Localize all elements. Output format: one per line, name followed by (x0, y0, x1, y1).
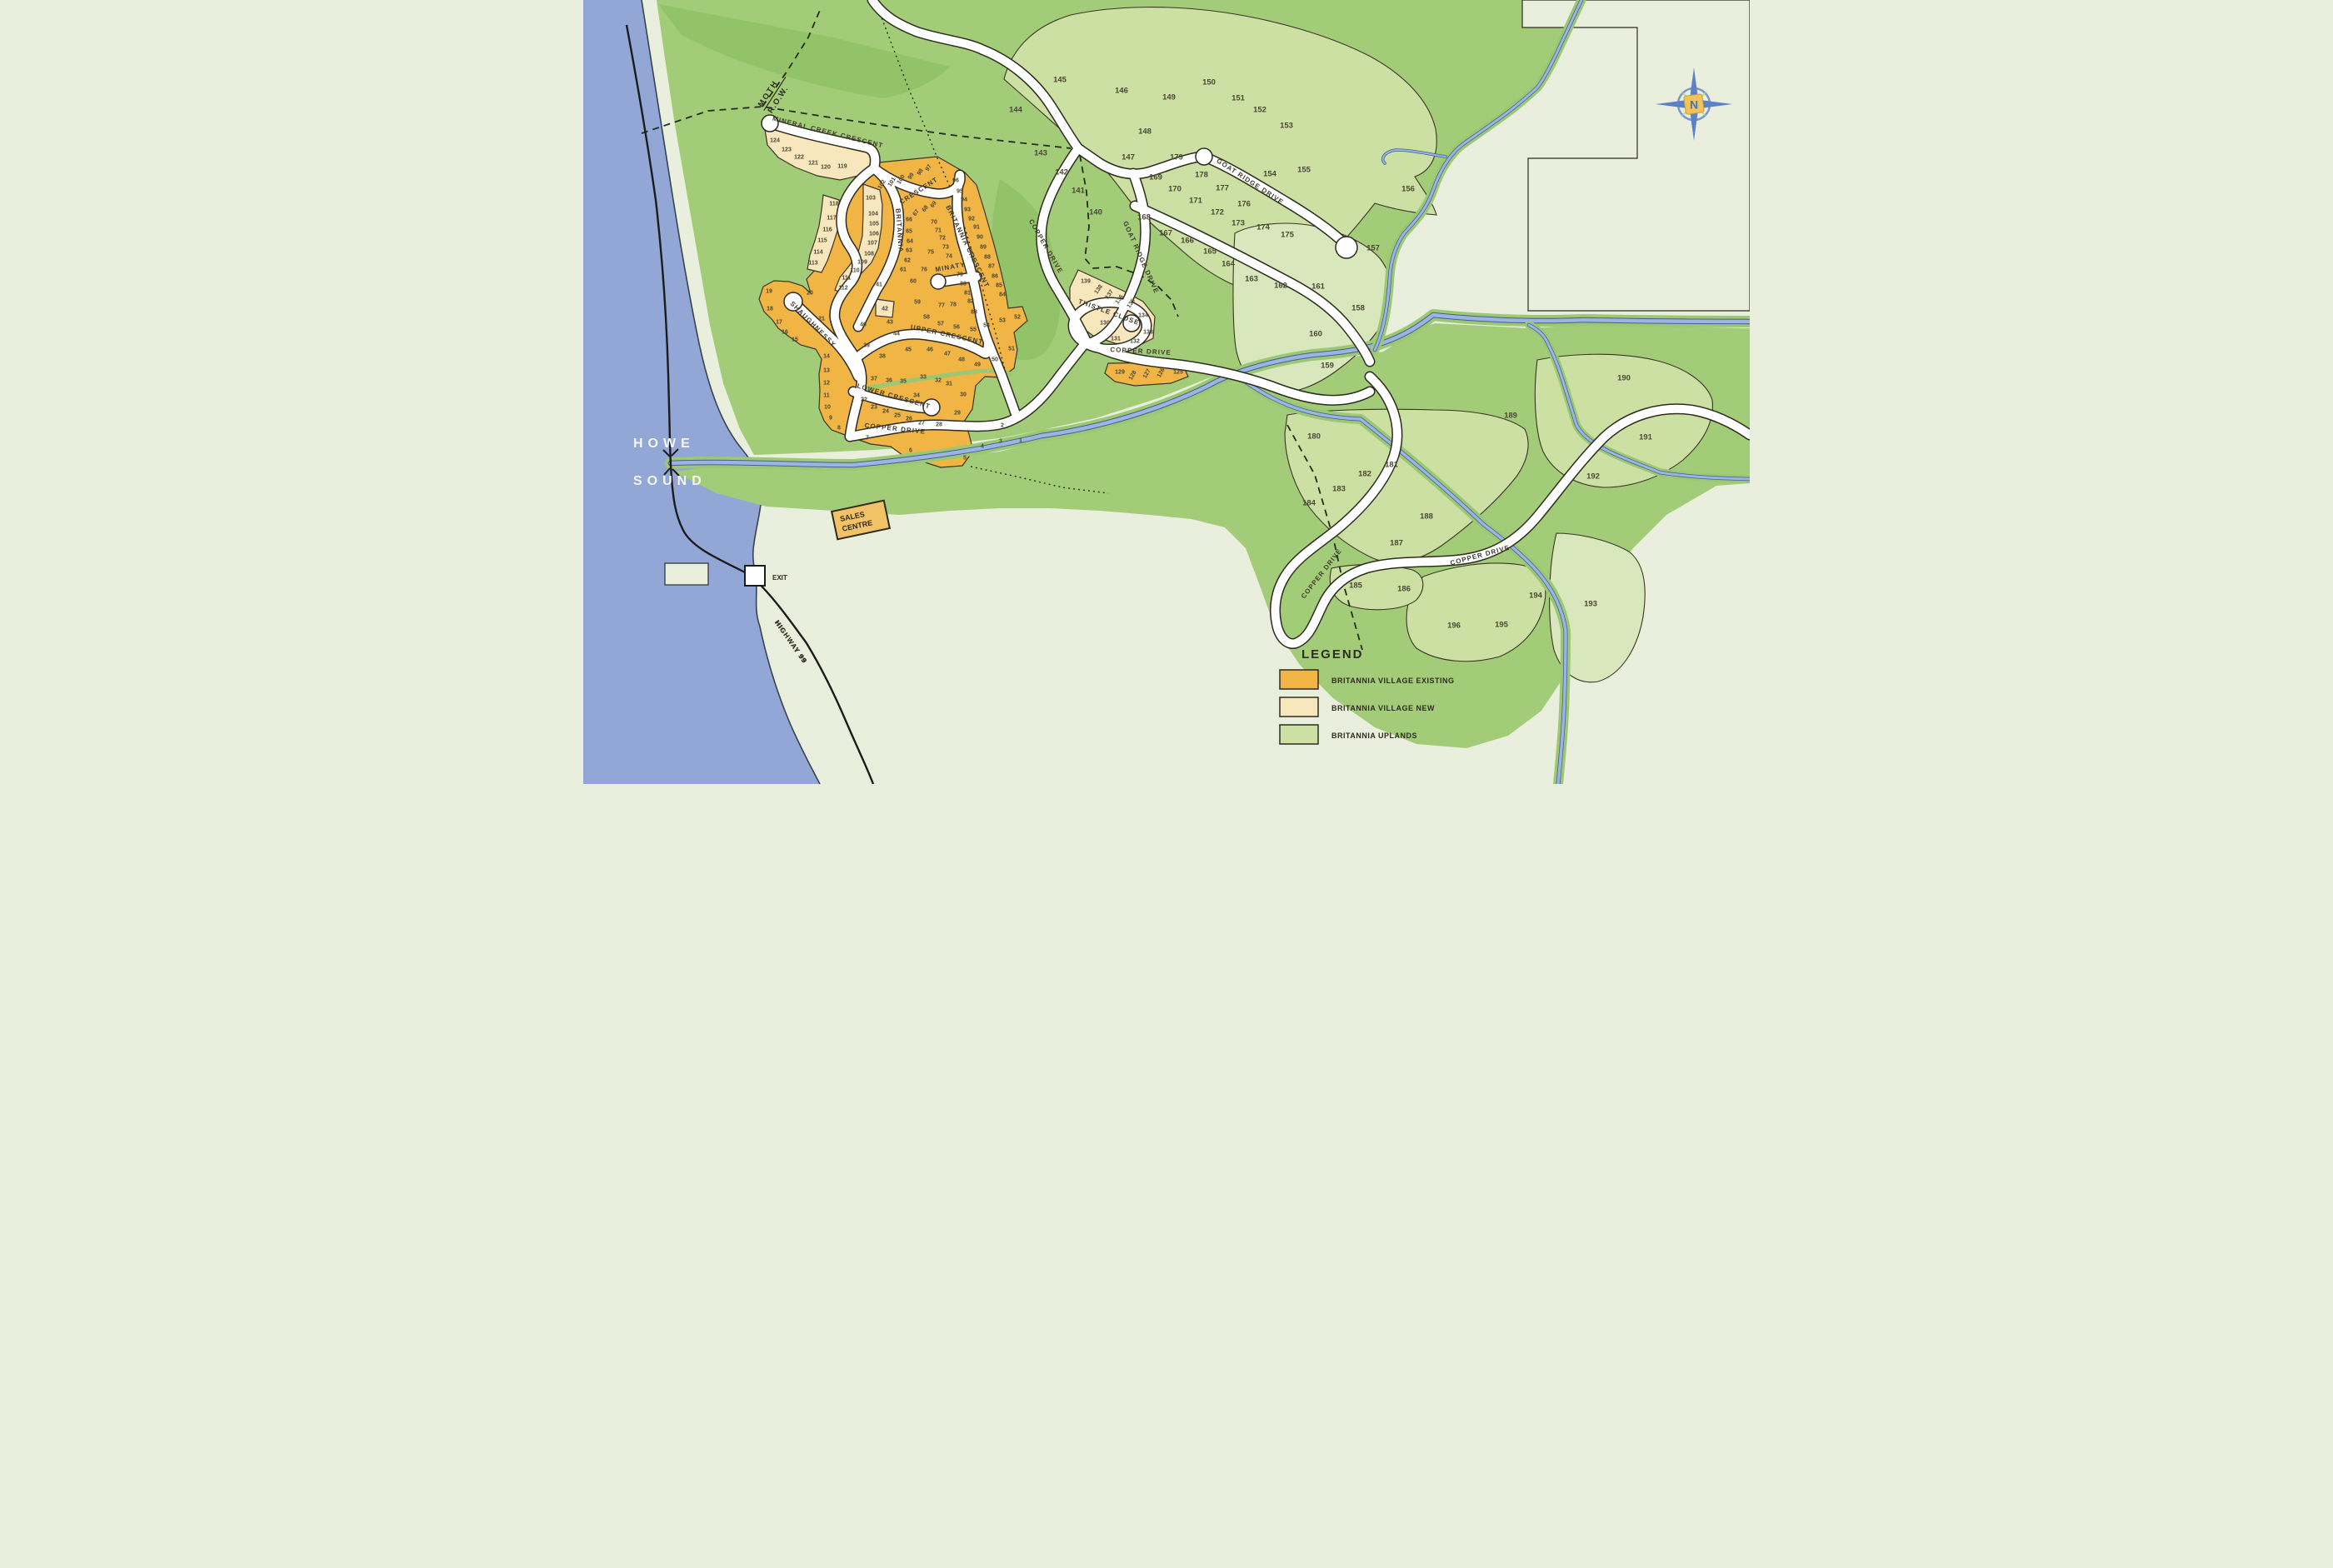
lot-label: 8 (837, 425, 841, 431)
lot-label: 79 (957, 272, 963, 277)
lot-label: 139 (1081, 278, 1091, 284)
lot-label: 174 (1256, 222, 1271, 232)
lot-label: 149 (1162, 92, 1176, 102)
lot-label: 30 (960, 392, 967, 397)
lot-label: 1 (1019, 437, 1022, 443)
lot-label: 46 (927, 347, 933, 352)
lot-label: 36 (886, 377, 892, 383)
lot-label: 84 (999, 292, 1006, 297)
lot-label: 80 (960, 281, 967, 287)
lot-label: 58 (923, 314, 930, 320)
lot-label: 148 (1138, 127, 1152, 136)
lot-label: 134 (1138, 312, 1148, 318)
lot-label: 142 (1055, 167, 1068, 177)
lot-label: 157 (1366, 243, 1380, 252)
lot-label: 85 (996, 282, 1002, 288)
lot-label: 56 (953, 324, 960, 330)
lot-label: 161 (1311, 282, 1326, 291)
lot-label: 162 (1274, 281, 1287, 290)
legend-label-uplands: BRITANNIA UPLANDS (1331, 732, 1417, 740)
lot-label: 23 (871, 404, 877, 410)
road-label: HIGHWAY 99 (773, 620, 807, 665)
lot-label: 63 (906, 247, 912, 253)
lot-label: 130 (1100, 320, 1110, 326)
lot-label: 147 (1122, 152, 1135, 162)
lot-label: 70 (931, 219, 937, 225)
lot-label: 57 (937, 321, 944, 327)
lot-label: 87 (988, 263, 995, 269)
lot-label: 20 (807, 290, 813, 296)
lot-label: 81 (964, 290, 971, 296)
lot-label: 175 (1281, 230, 1295, 239)
lot-label: 47 (944, 351, 951, 357)
lot-label: 15 (792, 337, 798, 342)
lot-label: 95 (957, 188, 963, 194)
lot-label: 166 (1181, 236, 1194, 245)
lot-label: 144 (1009, 105, 1023, 114)
lot-label: 94 (961, 197, 967, 202)
lot-label: 31 (946, 381, 952, 387)
lot-label: 195 (1495, 620, 1509, 629)
lot-label: 193 (1584, 599, 1597, 608)
lot-label: 182 (1358, 469, 1371, 478)
legend-label-new: BRITANNIA VILLAGE NEW (1331, 704, 1435, 712)
lot-label: 40 (860, 322, 867, 327)
lot-label: 188 (1420, 512, 1433, 521)
map-stage: SALES CENTRE MOTH R.O.W. HOWE SOUND EXIT… (583, 0, 1750, 784)
lot-label: 32 (935, 377, 942, 383)
pier (665, 563, 708, 585)
lot-label: 3 (999, 438, 1002, 444)
lot-label: 110 (850, 267, 859, 273)
lot-label: 4 (981, 443, 984, 449)
lot-label: 89 (980, 244, 987, 250)
lot-label: 170 (1168, 184, 1181, 193)
compass-n: N (1690, 98, 1698, 112)
lot-label: 17 (776, 319, 782, 325)
lot-label: 93 (964, 207, 971, 212)
lot-label: 172 (1211, 207, 1224, 217)
lot-label: 86 (992, 273, 998, 279)
lot-label: 16 (782, 329, 788, 335)
lot-label: 51 (1008, 346, 1015, 352)
lot-label: 105 (869, 221, 879, 227)
lot-label: 91 (973, 224, 980, 230)
lot-label: 151 (1231, 93, 1246, 102)
lot-label: 59 (914, 299, 921, 305)
lot-label: 120 (821, 164, 831, 170)
lot-label: 61 (900, 267, 907, 272)
lot-label: 49 (974, 362, 981, 367)
lot-label: 111 (842, 275, 852, 281)
howe-label: HOWE (633, 437, 695, 451)
lot-label: 114 (813, 249, 822, 255)
lot-label: 43 (887, 319, 893, 325)
lot-label: 65 (906, 228, 912, 234)
lot-label: 103 (866, 195, 876, 201)
lot-label: 76 (921, 267, 927, 272)
lot-label: 14 (823, 353, 830, 359)
exit-label: EXIT (772, 574, 787, 582)
lot-label: 122 (794, 154, 804, 160)
legend-swatch-existing (1280, 670, 1318, 689)
lot-label: 185 (1349, 581, 1363, 590)
lot-label: 73 (942, 244, 949, 250)
lot-label: 186 (1397, 584, 1411, 593)
lot-label: 133 (1143, 329, 1153, 335)
lot-label: 145 (1053, 75, 1067, 84)
lot-label: 171 (1189, 196, 1203, 205)
lot-label: 109 (857, 259, 867, 265)
lot-label: 53 (999, 317, 1006, 323)
lot-label: 26 (906, 416, 912, 422)
lot-label: 108 (864, 251, 874, 257)
exit-box (745, 566, 765, 586)
lot-label: 96 (952, 177, 959, 183)
lot-label: 179 (1170, 152, 1183, 162)
lot-label: 10 (824, 404, 831, 410)
legend-label-existing: BRITANNIA VILLAGE EXISTING (1331, 677, 1455, 685)
lot-label: 18 (767, 306, 773, 312)
lot-label: 168 (1137, 212, 1151, 222)
lot-label: 140 (1089, 207, 1102, 217)
lot-label: 154 (1263, 169, 1277, 178)
lot-label: 118 (829, 201, 838, 207)
lot-label: 176 (1237, 199, 1251, 208)
lot-label: 83 (971, 309, 977, 315)
lot-label: 181 (1385, 460, 1399, 469)
lot-label: 177 (1216, 183, 1229, 192)
lot-label: 152 (1253, 105, 1266, 114)
lot-label: 189 (1504, 411, 1517, 420)
lot-label: 7 (866, 435, 869, 441)
lot-label: 112 (838, 285, 847, 291)
lot-label: 115 (817, 237, 827, 243)
lot-label: 13 (823, 367, 830, 373)
lot-label: 2 (1001, 422, 1004, 428)
lot-label: 42 (882, 306, 888, 312)
lot-label: 19 (766, 288, 772, 294)
lot-label: 183 (1332, 484, 1346, 493)
lot-label: 141 (1072, 186, 1086, 195)
lot-label: 156 (1401, 184, 1415, 193)
lot-label: 27 (918, 420, 925, 426)
legend-title: LEGEND (1301, 647, 1364, 662)
lot-label: 54 (983, 322, 990, 328)
lot-label: 163 (1245, 274, 1258, 283)
lot-label: 90 (977, 234, 983, 240)
lot-label: 165 (1203, 247, 1217, 256)
lot-label: 121 (808, 160, 818, 166)
lot-label: 75 (927, 249, 934, 255)
lot-label: 146 (1115, 86, 1128, 95)
lot-label: 104 (868, 211, 878, 217)
lot-label: 34 (913, 392, 920, 398)
lot-label: 119 (837, 163, 847, 169)
lot-label: 124 (770, 137, 780, 143)
lot-label: 41 (876, 282, 882, 287)
lot-label: 116 (822, 227, 832, 232)
lot-label: 38 (879, 353, 886, 359)
lot-label: 5 (963, 455, 967, 461)
lot-label: 160 (1309, 329, 1322, 338)
lot-label: 12 (823, 380, 830, 386)
lot-label: 28 (936, 422, 942, 427)
lot-label: 158 (1351, 303, 1365, 312)
lot-label: 192 (1586, 472, 1600, 481)
lot-label: 52 (1014, 314, 1021, 320)
lot-label: 60 (910, 278, 917, 284)
lot-label: 39 (863, 342, 870, 348)
lot-label: 33 (920, 374, 927, 380)
lot-label: 45 (905, 347, 912, 352)
lot-label: 129 (1115, 369, 1125, 375)
lot-label: 150 (1202, 77, 1216, 87)
lot-label: 37 (871, 376, 877, 382)
lot-label: 9 (829, 415, 832, 421)
lot-label: 92 (968, 216, 975, 222)
legend-swatch-new (1280, 697, 1318, 717)
lot-label: 48 (958, 357, 965, 362)
lot-label: 6 (909, 447, 912, 453)
sound-label: SOUND (633, 474, 707, 488)
lot-label: 106 (869, 231, 879, 237)
lot-label: 131 (1111, 336, 1121, 342)
lot-label: 29 (954, 410, 961, 416)
lot-label: 187 (1390, 538, 1403, 547)
lot-label: 190 (1617, 373, 1631, 382)
lot-label: 184 (1302, 498, 1316, 507)
lot-label: 24 (882, 408, 889, 414)
lot-label: 66 (906, 217, 912, 222)
lot-label: 159 (1321, 361, 1334, 370)
lot-label: 194 (1529, 591, 1543, 600)
map-svg: SALES CENTRE MOTH R.O.W. HOWE SOUND EXIT… (583, 0, 1750, 784)
lot-label: 50 (992, 357, 998, 362)
lot-label: 77 (938, 302, 945, 308)
lot-label: 107 (867, 240, 877, 246)
lot-label: 72 (939, 235, 946, 241)
lot-label: 178 (1195, 170, 1208, 179)
lot-label: 55 (970, 327, 977, 332)
lot-label: 143 (1034, 148, 1047, 157)
lot-label: 113 (808, 260, 817, 266)
lot-label: 164 (1221, 259, 1236, 268)
lot-label: 74 (946, 253, 952, 259)
lot-label: 191 (1639, 432, 1653, 442)
lot-label: 125 (1173, 369, 1183, 375)
lot-label: 25 (894, 412, 901, 418)
lot-label: 169 (1149, 172, 1162, 182)
lot-label: 64 (907, 238, 913, 244)
lot-label: 82 (967, 298, 974, 304)
lot-label: 196 (1447, 621, 1461, 630)
lot-label: 117 (827, 215, 836, 221)
lot-label: 123 (782, 147, 792, 152)
lot-label: 155 (1297, 165, 1311, 174)
lot-label: 62 (904, 257, 911, 263)
lot-label: 44 (893, 331, 900, 337)
lot-label: 21 (818, 316, 825, 322)
lot-label: 132 (1130, 338, 1140, 344)
lot-label: 11 (823, 392, 830, 398)
lot-label: 35 (900, 378, 907, 384)
lot-label: 78 (950, 302, 957, 307)
lot-label: 153 (1280, 121, 1293, 130)
lot-label: 173 (1231, 218, 1245, 227)
legend-swatch-uplands (1280, 725, 1318, 744)
lot-label: 88 (984, 254, 991, 260)
lot-label: 22 (861, 397, 867, 402)
lot-label: 167 (1159, 228, 1172, 237)
lot-label: 180 (1307, 432, 1321, 441)
lot-label: 71 (935, 227, 942, 233)
